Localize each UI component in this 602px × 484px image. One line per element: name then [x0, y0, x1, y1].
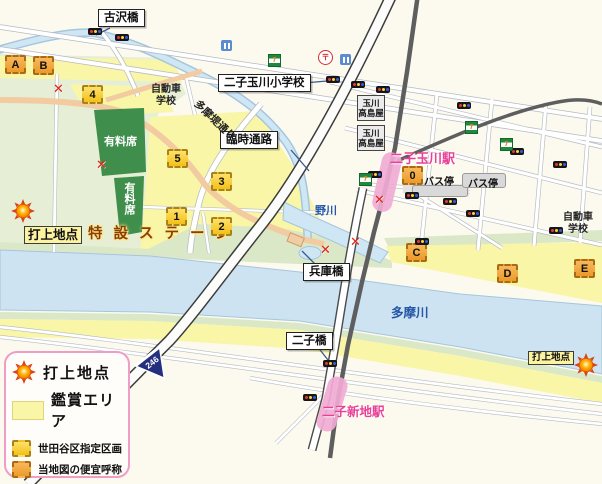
no-entry-icon	[96, 158, 107, 171]
legend-item-label: 鑑賞エリア	[51, 389, 123, 431]
zone-box-d: D	[497, 264, 518, 283]
traffic-signal-icon	[466, 210, 480, 217]
fireworks-festival-map: 古沢橋 二子玉川小学校 臨時通路 兵庫橋 二子橋 多摩堤通り 二子玉川駅 二子新…	[0, 0, 602, 484]
convenience-store-icon: 7	[268, 54, 281, 67]
launch-site-east-label: 打上地点	[528, 351, 574, 365]
launch-site-sun-icon-west	[11, 199, 35, 223]
zone-box-4: 4	[82, 85, 103, 104]
legend-item-designated-section: 世田谷区指定区画	[12, 440, 123, 457]
paid-seats-upper-label: 有料席	[104, 133, 137, 149]
legend-item-label: 世田谷区指定区画	[38, 441, 122, 456]
traffic-signal-icon	[351, 81, 365, 88]
legend-item-viewing-area: 鑑賞エリア	[12, 389, 123, 431]
no-entry-icon	[350, 235, 361, 248]
takashimaya-sign-top: 玉川 高島屋	[357, 95, 385, 121]
viewing-area-ab	[0, 56, 182, 82]
zone-box-a: A	[5, 55, 26, 74]
convenience-store-icon: 7	[500, 138, 513, 151]
bridge-icon	[340, 54, 351, 65]
orange-dashed-box-icon	[12, 461, 31, 478]
post-office-icon: 〒	[318, 50, 333, 65]
traffic-signal-icon	[115, 34, 129, 41]
zone-box-c: C	[406, 243, 427, 262]
sun-icon	[12, 360, 36, 384]
bridge-icon	[221, 40, 232, 51]
bus-stop-west-label: バス停	[424, 173, 454, 188]
convenience-store-icon: 7	[465, 121, 478, 134]
legend-item-launch-site: 打上地点	[12, 360, 123, 384]
futakotamagawa-station-label: 二子玉川駅	[390, 148, 455, 167]
traffic-signal-icon	[415, 238, 429, 245]
traffic-signal-icon	[549, 227, 563, 234]
no-entry-icon	[53, 82, 64, 95]
yellow-area-swatch	[12, 401, 44, 420]
legend-item-label: 打上地点	[43, 362, 111, 383]
legend-item-map-name: 当地図の便宜呼称	[12, 461, 123, 478]
takashimaya-sign-bottom: 玉川 高島屋	[357, 125, 385, 151]
nogawa-river-label: 野川	[315, 202, 337, 218]
hyogo-bridge-label: 兵庫橋	[303, 263, 350, 281]
zone-box-e: E	[574, 259, 595, 278]
no-entry-icon	[320, 243, 331, 256]
elementary-school-label: 二子玉川小学校	[218, 74, 311, 92]
futakoshinchi-station-label: 二子新地駅	[322, 401, 385, 420]
no-entry-icon	[374, 193, 385, 206]
paid-seats-lower-label: 有料席	[121, 182, 137, 215]
launch-site-west-label: 打上地点	[24, 226, 82, 244]
zone-box-b: B	[33, 56, 54, 75]
traffic-signal-icon	[323, 360, 337, 367]
futako-bridge-label: 二子橋	[286, 332, 333, 350]
zone-box-0: 0	[402, 166, 423, 185]
zone-box-5: 5	[167, 149, 188, 168]
traffic-signal-icon	[326, 76, 340, 83]
traffic-signal-icon	[303, 394, 317, 401]
traffic-signal-icon	[88, 28, 102, 35]
furusawa-bridge-label: 古沢橋	[98, 9, 145, 27]
legend-item-label: 当地図の便宜呼称	[38, 462, 122, 477]
pond	[299, 247, 321, 260]
traffic-signal-icon	[553, 161, 567, 168]
traffic-signal-icon	[443, 198, 457, 205]
gold-dashed-box-icon	[12, 440, 31, 457]
traffic-signal-icon	[457, 102, 471, 109]
zone-box-1: 1	[166, 207, 187, 226]
bus-stop-east-label: バス停	[468, 175, 498, 190]
legend-panel: 打上地点 鑑賞エリア 世田谷区指定区画 当地図の便宜呼称 進入禁止	[4, 351, 130, 478]
zone-box-2: 2	[211, 217, 232, 236]
tama-river-label: 多摩川	[391, 302, 429, 321]
zone-box-3: 3	[211, 172, 232, 191]
convenience-store-icon: 7	[359, 173, 372, 186]
traffic-signal-icon	[376, 86, 390, 93]
launch-site-sun-icon-east	[574, 353, 598, 377]
driving-school-nw-label: 自動車 学校	[151, 84, 181, 107]
traffic-signal-icon	[405, 192, 419, 199]
driving-school-e-label: 自動車 学校	[563, 212, 593, 235]
